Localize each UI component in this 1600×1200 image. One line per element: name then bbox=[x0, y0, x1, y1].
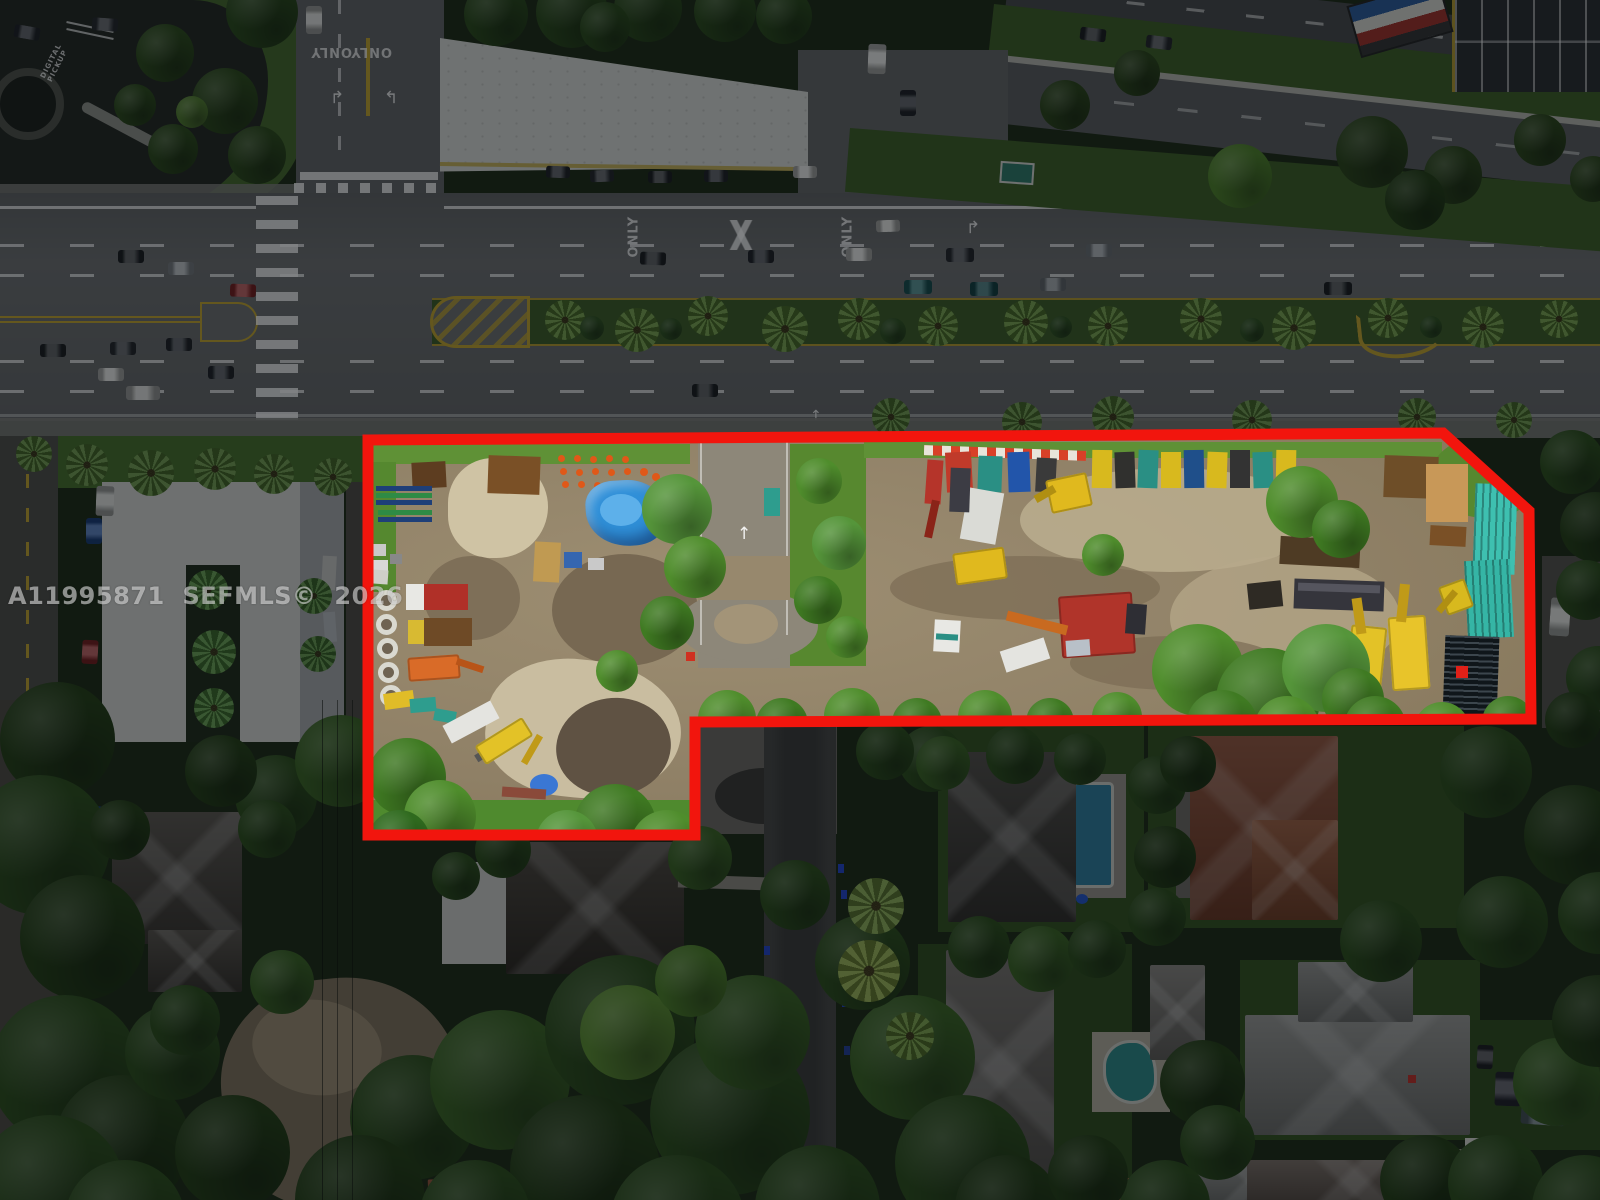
mls-watermark: A11995871 SEFMLS© 2026 bbox=[8, 582, 403, 610]
aerial-listing-photo: DIGITAL PICKUP ONLY ONLY ↱ ↱ ONLY ONLY ↱… bbox=[0, 0, 1600, 1200]
